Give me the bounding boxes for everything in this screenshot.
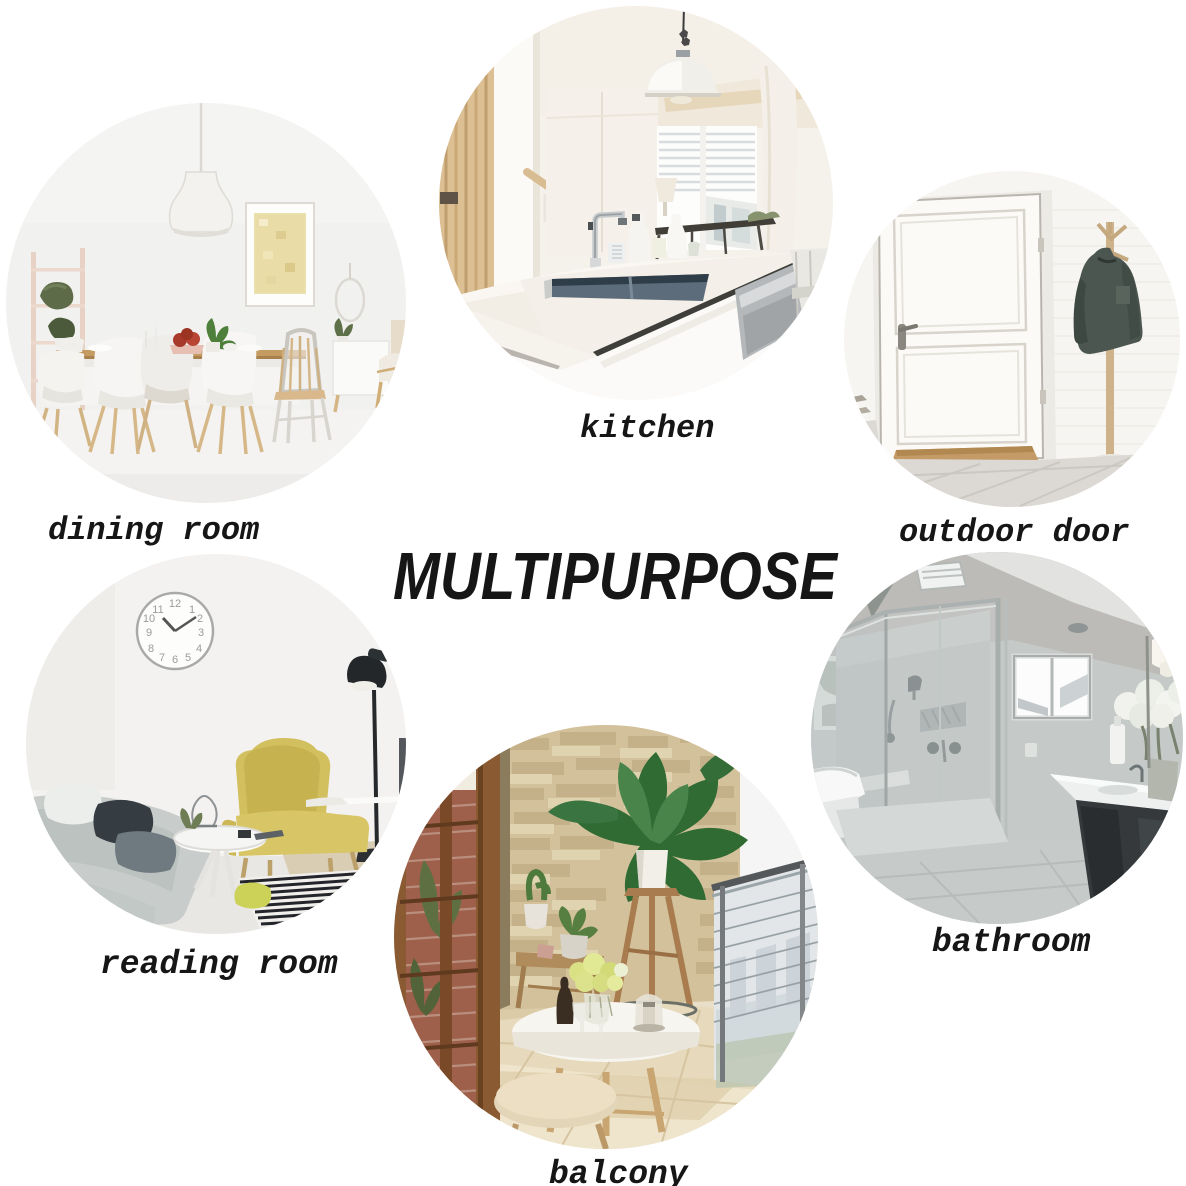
svg-text:1: 1 [189,604,195,616]
svg-text:kitchen: kitchen [580,410,714,447]
svg-text:dining room: dining room [48,512,259,549]
svg-text:9: 9 [146,627,152,639]
svg-text:outdoor door: outdoor door [899,514,1129,551]
svg-text:reading room: reading room [100,946,338,983]
svg-text:12: 12 [169,598,181,610]
svg-text:5: 5 [185,652,191,664]
svg-text:2: 2 [197,613,203,625]
svg-text:bathroom: bathroom [932,924,1091,961]
svg-text:8: 8 [148,643,154,655]
svg-text:7: 7 [159,652,165,664]
svg-text:balcony: balcony [549,1156,689,1186]
svg-text:4: 4 [196,643,202,655]
svg-text:6: 6 [172,654,178,666]
svg-text:10: 10 [143,613,155,625]
svg-text:MULTIPURPOSE: MULTIPURPOSE [393,539,839,614]
svg-text:3: 3 [198,627,204,639]
